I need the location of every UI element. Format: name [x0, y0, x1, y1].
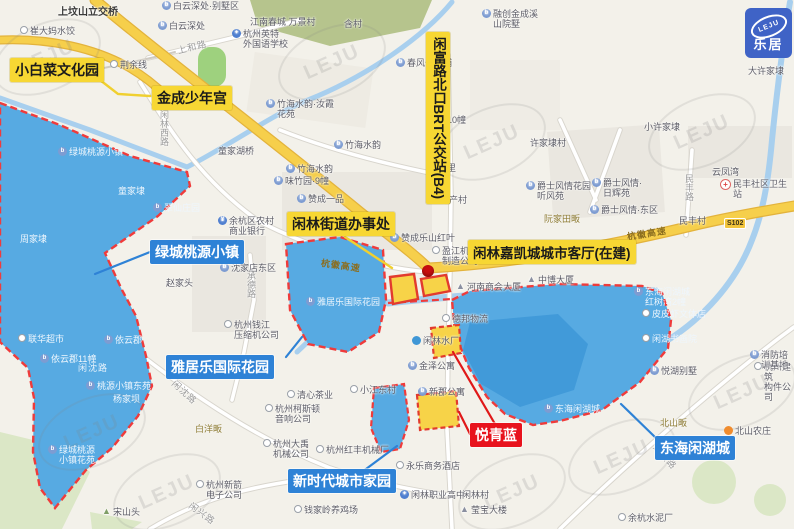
poi-text: 白云深处·别墅区: [173, 1, 239, 11]
poi-text: 杨家坝: [113, 394, 140, 404]
poi-label: ▲宋山头: [102, 507, 140, 517]
poi-text: 余杭区农村 商业银行: [229, 216, 274, 236]
bs-icon: b: [48, 445, 57, 454]
poi-label: 杭州柯斯顿 音响公司: [265, 404, 320, 424]
poi-text: 许家埭村: [530, 138, 566, 148]
callout-xiaobaicai-culture-park[interactable]: 小白菜文化园: [10, 58, 104, 82]
poi-text: 德邦物流: [452, 314, 488, 324]
callout-jincheng-youth-palace[interactable]: 金成少年宫: [152, 86, 232, 110]
poi-label: 德邦物流: [442, 314, 488, 324]
poi-label: 小许家埭: [644, 122, 680, 132]
water-icon: [412, 336, 421, 345]
poi-label: 余杭水泥厂: [618, 513, 673, 523]
poi-text: 北山农庄: [735, 426, 771, 436]
poi-label: ▲中博大厦: [527, 275, 574, 285]
poi-label: b爵士风情·东区: [590, 205, 658, 215]
poi-text: 大许家埭: [748, 66, 784, 76]
poi-text: 杭州红丰机械厂: [326, 445, 389, 455]
poi-text: 江南春城 万景村: [250, 17, 316, 27]
poi-text: 悦湖别墅: [661, 366, 697, 376]
bs-icon: b: [162, 1, 171, 10]
poi-label: ✦杭州英特 外国语学校: [232, 29, 288, 49]
poi-label: b桃源小镇东苑: [86, 381, 151, 391]
poi-text: 崔大妈水饺: [30, 26, 75, 36]
dot-icon: [287, 390, 295, 398]
bs-icon: b: [40, 354, 49, 363]
bs-icon: b: [266, 99, 275, 108]
dot-icon: [18, 334, 26, 342]
poi-label: 杨家坝: [113, 394, 140, 404]
poi-label: 赵家头: [166, 278, 193, 288]
road-label: 闲沈路: [78, 361, 108, 374]
poi-text: 绿城桃源小镇: [69, 147, 123, 157]
poi-label: b爵士风情花园 听风苑: [526, 181, 591, 201]
poi-label: 闲林村: [462, 490, 489, 500]
bs-icon: b: [153, 203, 162, 212]
dot-icon: [442, 314, 450, 322]
bs-icon: b: [58, 147, 67, 156]
leju-logo-en: LEJU: [757, 19, 780, 34]
poi-label: +民丰社区卫生站: [720, 179, 794, 199]
poi-text: 杭州大禹 机械公司: [273, 439, 309, 459]
poi-text: 杭州柯斯顿 音响公司: [275, 404, 320, 424]
bs-icon: b: [408, 361, 417, 370]
poi-text: 闲林村: [462, 490, 489, 500]
poi-text: 竹海水韵: [297, 164, 333, 174]
poi-label: 钱家岭养鸡场: [294, 505, 358, 515]
poi-text: 绿城桃源 小镇花苑: [59, 445, 95, 465]
poi-text: 赞成一品: [308, 194, 344, 204]
poi-label: b翠仙庄园: [153, 203, 200, 213]
poi-text: 爵士风情· 日辉苑: [603, 178, 642, 198]
poi-label: b爵士风情· 日辉苑: [592, 178, 642, 198]
poi-text: 闲湖书画院: [652, 334, 697, 344]
parcel-a: [390, 274, 418, 304]
dot-icon: [20, 26, 28, 34]
orange-icon: [724, 426, 733, 435]
poi-label: ▲莹宝大楼: [460, 505, 507, 515]
bldg-icon: ▲: [456, 282, 465, 291]
poi-text: 融创金成溪 山院墅: [493, 9, 538, 29]
bs-icon: b: [526, 181, 535, 190]
bs-icon: b: [158, 21, 167, 30]
bs-icon: b: [592, 178, 601, 187]
poi-label: 周家埭: [20, 234, 47, 244]
poi-label: 清心茶业: [287, 390, 333, 400]
poi-text: 杭州新箭 电子公司: [206, 480, 242, 500]
bs-icon: b: [297, 194, 306, 203]
poi-label: 杭州新箭 电子公司: [196, 480, 242, 500]
dot-icon: [196, 480, 204, 488]
dot-icon: [294, 505, 302, 513]
poi-text: 余杭水泥厂: [628, 513, 673, 523]
poi-text: 翠仙庄园: [164, 203, 200, 213]
leju-logo[interactable]: LEJU 乐居: [745, 8, 792, 58]
hill-icon: ▲: [102, 507, 111, 516]
poi-label: 皮皮虾文体店: [642, 309, 706, 319]
dot-icon: [396, 461, 404, 469]
poi-label: ✦闲林职业高中: [400, 490, 465, 500]
poi-label: b悦湖别墅: [650, 366, 697, 376]
poi-text: 河南商会大厦: [467, 282, 521, 292]
bs-icon: b: [334, 140, 343, 149]
road-label: 承德路: [245, 271, 258, 298]
poi-label: 大许家埭: [748, 66, 784, 76]
poi-text: 周家埭: [20, 234, 47, 244]
poi-label: 童家埭: [118, 186, 145, 196]
poi-label: b雅居乐国际花园: [306, 297, 380, 307]
poi-text: 闲林水厂: [423, 336, 459, 346]
poi-text: 赞成乐山红叶: [401, 233, 455, 243]
hill-area-se2: [754, 484, 786, 516]
bs-icon: b: [396, 58, 405, 67]
poi-text: 竹海水韵: [345, 140, 381, 150]
poi-label: 含村: [344, 19, 362, 29]
poi-text: 含村: [344, 19, 362, 29]
poi-text: 赵家头: [166, 278, 193, 288]
poi-text: 味竹园·9幢: [285, 176, 329, 186]
poi-label: 杭州大禹 机械公司: [263, 439, 309, 459]
dot-icon: [316, 445, 324, 453]
dot-icon: [224, 320, 232, 328]
callout-donghai-xianhu-city[interactable]: 东海闲湖城: [655, 436, 735, 460]
poi-label: ¥余杭区农村 商业银行: [218, 216, 274, 236]
poi-text: 荆余线: [120, 60, 147, 70]
poi-label: 崔大妈水饺: [20, 26, 75, 36]
poi-text: 杭州钱江 压缩机公司: [234, 320, 279, 340]
poi-text: 白云深处: [169, 21, 205, 31]
poi-label: b竹海水韵·汝霞 花苑: [266, 99, 334, 119]
dot-icon: [642, 309, 650, 317]
poi-text: 永乐商务酒店: [406, 461, 460, 471]
dot-icon: [618, 513, 626, 521]
poi-text: 小许家埭: [644, 122, 680, 132]
bs-icon: b: [750, 350, 759, 359]
poi-text: 闲林职业高中: [411, 490, 465, 500]
poi-label: 闲湖书画院: [642, 334, 697, 344]
bs-icon: b: [86, 381, 95, 390]
poi-text: 依云郡: [115, 335, 142, 345]
poi-text: 童家湖桥: [218, 146, 254, 156]
poi-text: 杭州英特 外国语学校: [243, 29, 288, 49]
poi-label: ▲河南商会大厦: [456, 282, 521, 292]
bldg-icon: ▲: [460, 505, 469, 514]
leju-logo-cn: 乐居: [753, 38, 783, 51]
bs-icon: b: [220, 263, 229, 272]
dot-icon: [642, 334, 650, 342]
poi-label: b味竹园·9幢: [274, 176, 329, 186]
poi-text: 中博大厦: [538, 275, 574, 285]
property-marker[interactable]: [422, 265, 434, 277]
bank-icon: ¥: [218, 216, 227, 225]
poi-text: 民丰村: [679, 216, 706, 226]
poi-label: 民丰村: [679, 216, 706, 226]
poi-label: b绿城桃源小镇: [58, 147, 123, 157]
school-icon: ✦: [232, 29, 241, 38]
poi-text: 联华超市: [28, 334, 64, 344]
poi-label: b新郡公寓: [418, 387, 465, 397]
poi-label: 云凤湾: [712, 167, 739, 177]
poi-label: 北山农庄: [724, 426, 771, 436]
provincial-road-badge: S102: [724, 218, 746, 229]
poi-label: b白云深处: [158, 21, 205, 31]
callout-yajule-international-garden[interactable]: 雅居乐国际花园: [166, 355, 274, 379]
bs-icon: b: [274, 176, 283, 185]
poi-text: 北山畈: [660, 418, 687, 428]
callout-yueqinglan[interactable]: 悦青蓝: [470, 423, 522, 447]
poi-text: 云凤湾: [712, 167, 739, 177]
poi-text: 白洋畈: [195, 424, 222, 434]
poi-label: b绿城桃源 小镇花苑: [48, 445, 95, 465]
poi-label: 荆余线: [110, 60, 147, 70]
bs-icon: b: [590, 205, 599, 214]
callout-lvcheng-taoyuan-town[interactable]: 绿城桃源小镇: [150, 240, 244, 264]
parcel-b: [421, 275, 450, 296]
bs-icon: b: [286, 164, 295, 173]
bs-icon: b: [104, 335, 113, 344]
poi-text: 宋山头: [113, 507, 140, 517]
poi-label: 上坟山立交桥: [58, 8, 118, 18]
hill-area-se: [692, 460, 736, 504]
poi-label: b消防培训基地: [750, 350, 794, 370]
hosp-icon: +: [720, 179, 731, 190]
bs-icon: b: [482, 9, 491, 18]
poi-text: 钱家岭养鸡场: [304, 505, 358, 515]
poi-text: 清心茶业: [297, 390, 333, 400]
poi-label: b融创金成溪 山院墅: [482, 9, 538, 29]
poi-label: 杭州红丰机械厂: [316, 445, 389, 455]
bs-icon: b: [544, 404, 553, 413]
poi-text: 桃源小镇东苑: [97, 381, 151, 391]
callout-brt-station[interactable]: 闲富路北口BRT公交站(B4): [426, 32, 450, 204]
dot-icon: [265, 404, 273, 412]
poi-label: 阮家田畈: [544, 214, 580, 224]
poi-label: b东海闲湖城 红树湾2幢: [634, 287, 690, 307]
road-label: 民丰路: [683, 174, 696, 201]
poi-label: b东海闲湖城: [544, 404, 600, 414]
poi-text: 上坟山立交桥: [58, 8, 118, 18]
poi-label: 江南春城 万景村: [250, 17, 316, 27]
bs-icon: b: [650, 366, 659, 375]
poi-label: b赞成乐山红叶: [390, 233, 455, 243]
poi-label: b白云深处·别墅区: [162, 1, 239, 11]
poi-label: 童家湖桥: [218, 146, 254, 156]
poi-text: 竹海水韵·汝霞 花苑: [277, 99, 334, 119]
callout-new-era-city-home[interactable]: 新时代城市家园: [288, 469, 396, 493]
poi-text: 爵士风情花园 听风苑: [537, 181, 591, 201]
poi-text: 消防培训基地: [761, 350, 794, 370]
poi-text: 新郡公寓: [429, 387, 465, 397]
school-icon: ✦: [400, 490, 409, 499]
poi-label: 白洋畈: [195, 424, 222, 434]
poi-label: b金泽公寓: [408, 361, 455, 371]
poi-text: 阮家田畈: [544, 214, 580, 224]
poi-label: b依云郡: [104, 335, 142, 345]
poi-label: b竹海水韵: [334, 140, 381, 150]
bs-icon: b: [634, 287, 643, 296]
bldg-icon: ▲: [527, 275, 536, 284]
poi-label: 许家埭村: [530, 138, 566, 148]
poi-text: 皮皮虾文体店: [652, 309, 706, 319]
bs-icon: b: [306, 297, 315, 306]
dot-icon: [263, 439, 271, 447]
poi-label: b赞成一品: [297, 194, 344, 204]
poi-text: 民丰社区卫生站: [733, 179, 794, 199]
dot-icon: [350, 385, 358, 393]
poi-text: 金泽公寓: [419, 361, 455, 371]
road-label: 闲林西路: [158, 110, 171, 146]
poi-text: 东海闲湖城: [555, 404, 600, 414]
poi-text: 东海闲湖城 红树湾2幢: [645, 287, 690, 307]
dot-icon: [110, 60, 118, 68]
poi-label: 联华超市: [18, 334, 64, 344]
poi-text: 小江东村: [360, 385, 396, 395]
poi-label: 杭州钱江 压缩机公司: [224, 320, 279, 340]
poi-label: 小江东村: [350, 385, 396, 395]
poi-text: 莹宝大楼: [471, 505, 507, 515]
dot-icon: [432, 246, 440, 254]
callout-jiakaicheng-city-hall[interactable]: 闲林嘉凯城城市客厅(在建): [468, 240, 636, 264]
callout-xianlin-subdistrict-office[interactable]: 闲林街道办事处: [287, 212, 395, 236]
poi-text: 童家埭: [118, 186, 145, 196]
map-canvas: S102 LEJU 乐居 LEJULEJULEJULEJULEJULEJULEJ…: [0, 0, 794, 529]
poi-label: 闲林水厂: [412, 336, 459, 346]
poi-text: 爵士风情·东区: [601, 205, 658, 215]
poi-label: 北山畈: [660, 418, 687, 428]
bs-icon: b: [418, 387, 427, 396]
poi-label: b竹海水韵: [286, 164, 333, 174]
poi-text: 雅居乐国际花园: [317, 297, 380, 307]
poi-label: 永乐商务酒店: [396, 461, 460, 471]
